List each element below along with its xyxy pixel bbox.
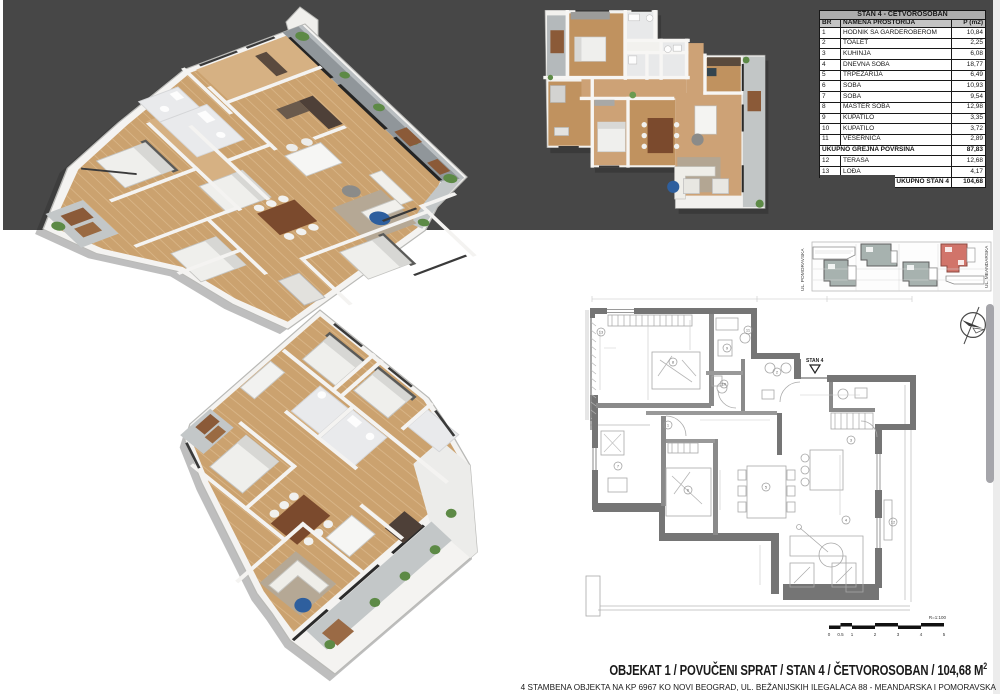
svg-text:5: 5 bbox=[943, 632, 946, 637]
svg-text:4: 4 bbox=[920, 632, 923, 637]
svg-text:8: 8 bbox=[672, 360, 675, 365]
svg-text:9: 9 bbox=[726, 346, 729, 351]
svg-text:4: 4 bbox=[845, 518, 848, 523]
svg-text:10: 10 bbox=[722, 382, 727, 387]
svg-text:STAN 4: STAN 4 bbox=[806, 358, 824, 364]
svg-text:0.5: 0.5 bbox=[837, 632, 844, 637]
svg-text:1: 1 bbox=[851, 632, 854, 637]
svg-text:13: 13 bbox=[599, 330, 604, 335]
svg-text:5: 5 bbox=[765, 485, 768, 490]
svg-text:1: 1 bbox=[667, 423, 670, 428]
svg-text:2: 2 bbox=[776, 370, 779, 375]
svg-text:12: 12 bbox=[891, 520, 896, 525]
svg-text:3: 3 bbox=[850, 438, 853, 443]
svg-text:11: 11 bbox=[746, 328, 751, 333]
svg-text:2: 2 bbox=[874, 632, 877, 637]
svg-text:0: 0 bbox=[828, 632, 831, 637]
svg-text:3: 3 bbox=[897, 632, 900, 637]
svg-text:R=1:100: R=1:100 bbox=[929, 615, 947, 620]
svg-text:7: 7 bbox=[617, 464, 620, 469]
